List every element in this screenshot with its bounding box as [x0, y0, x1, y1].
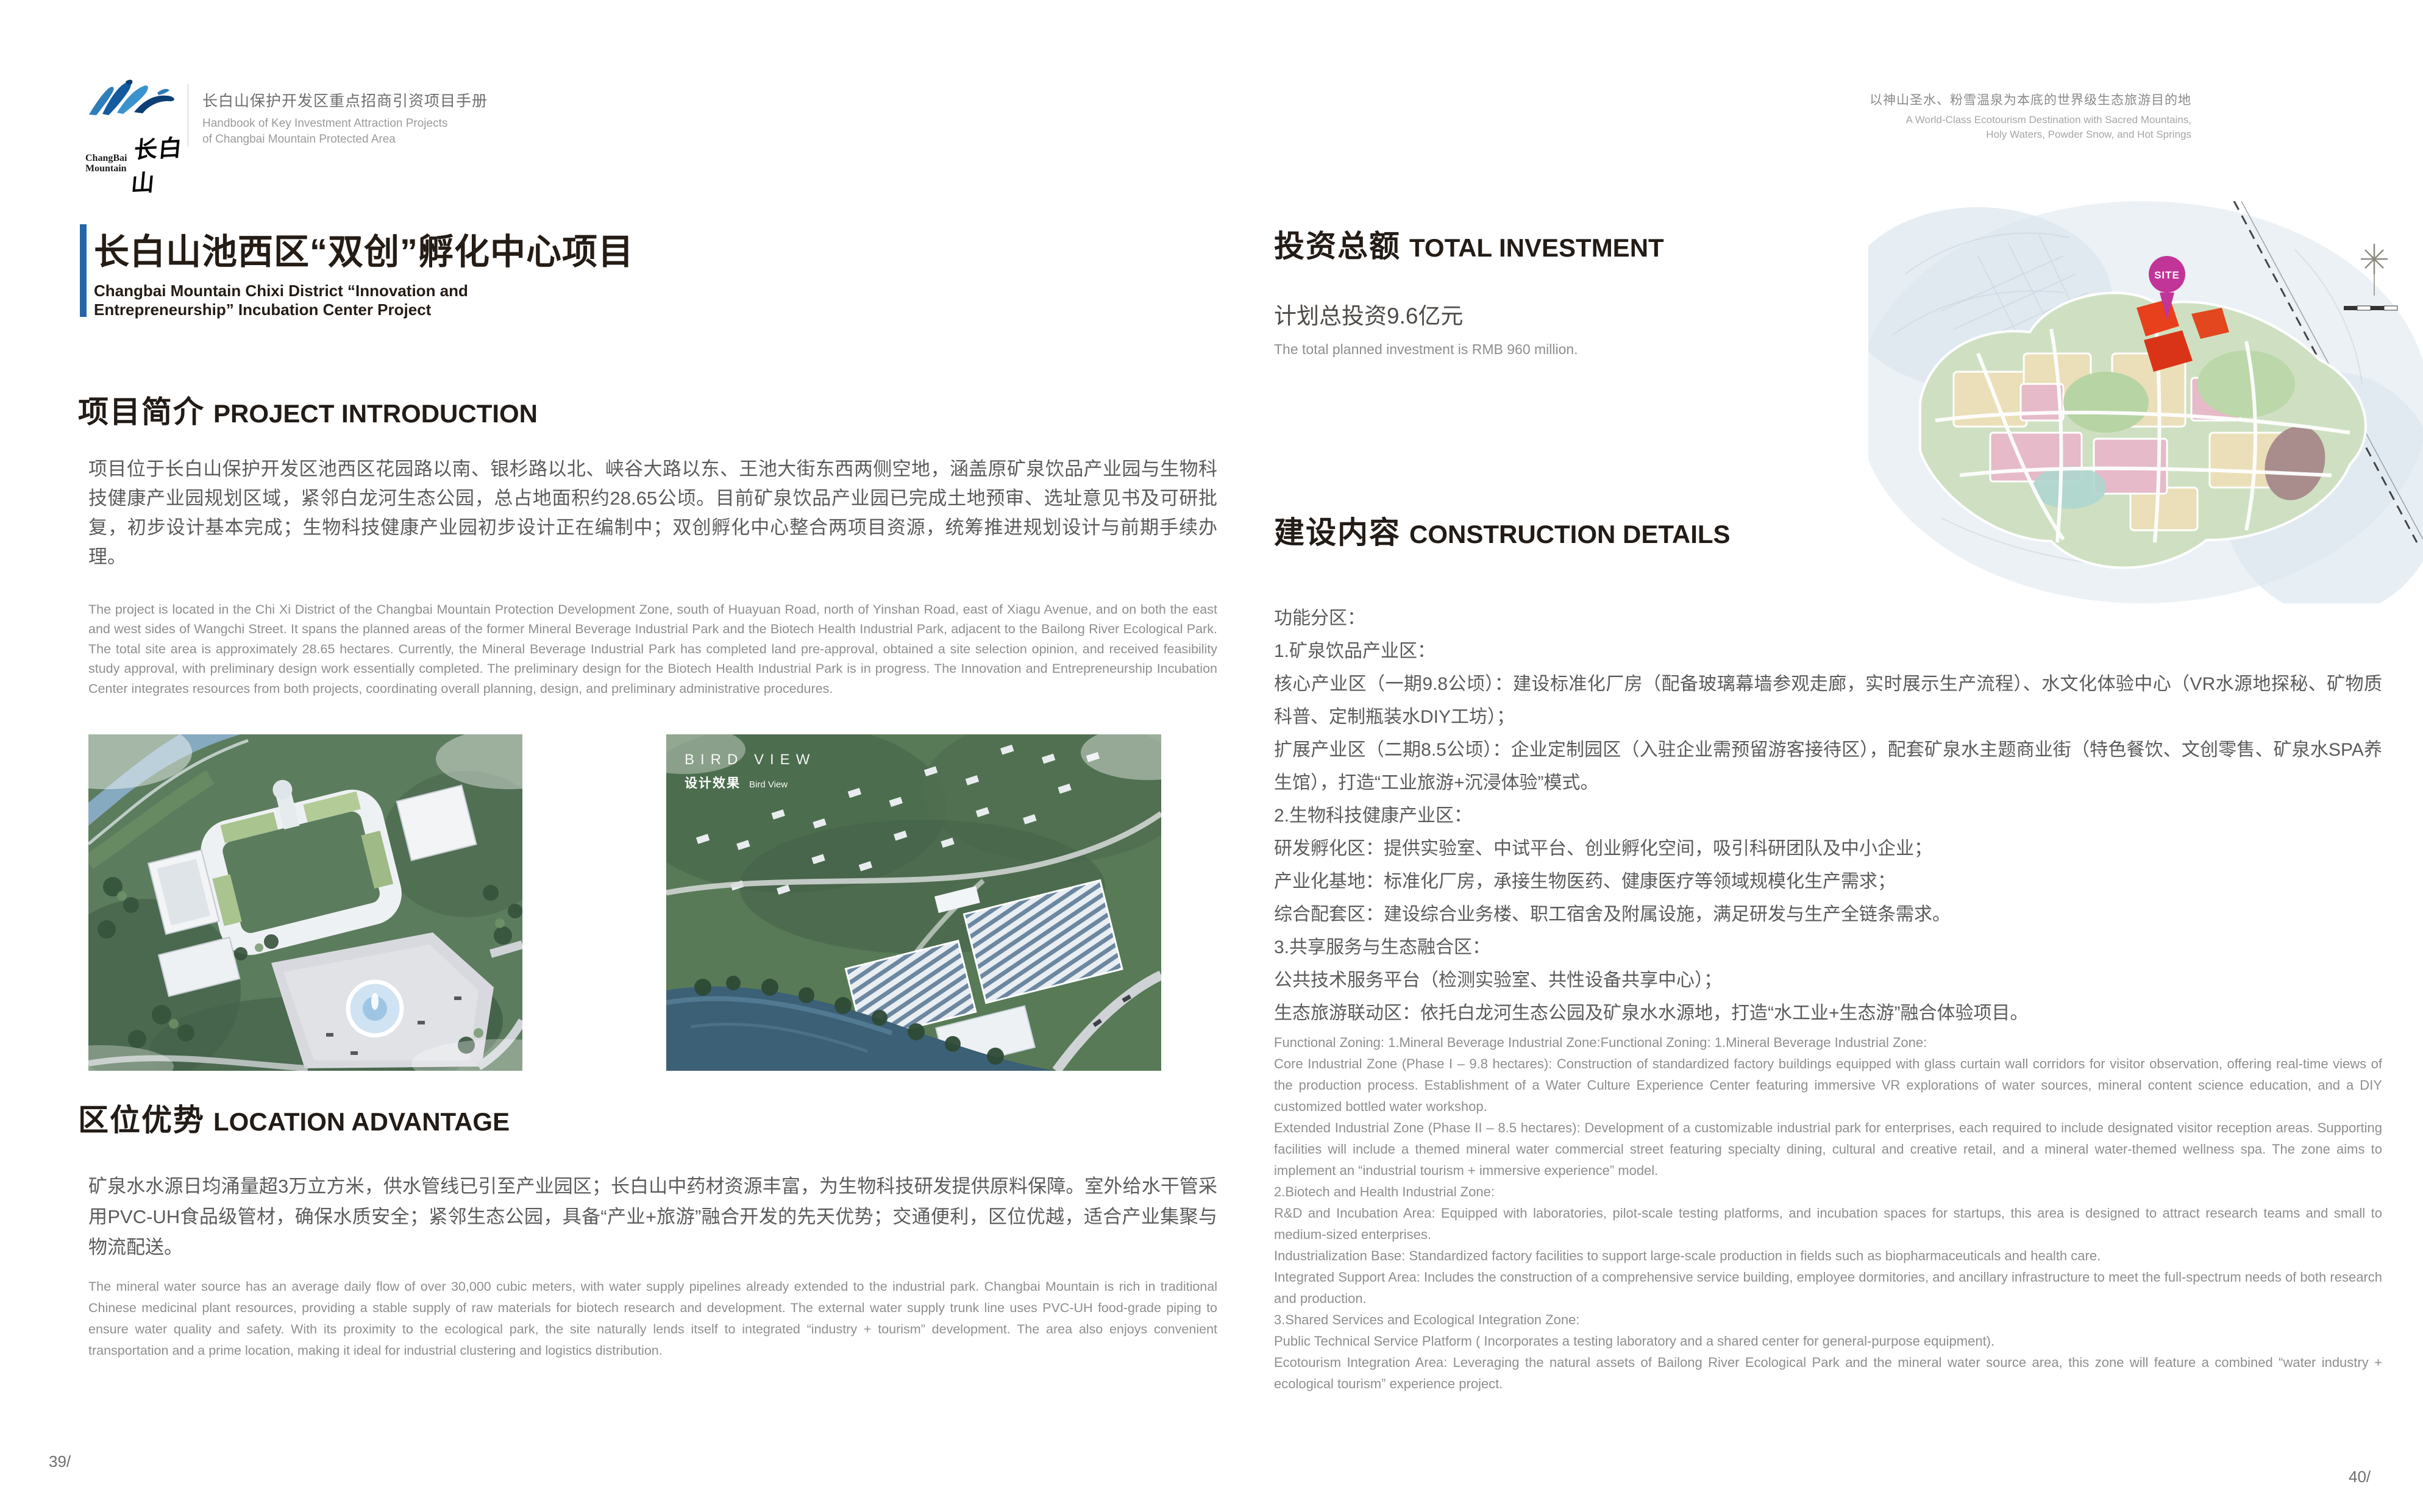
logo-calligraphy: 长白山: [130, 129, 192, 199]
logo-brand-line2: Mountain: [85, 163, 127, 174]
construction-en-line: R&D and Incubation Area: Equipped with l…: [1274, 1202, 2382, 1245]
campus-aerial-render: [88, 734, 522, 1071]
construction-heading: 建设内容CONSTRUCTION DETAILS: [1274, 508, 1731, 552]
intro-body-en: The project is located in the Chi Xi Dis…: [88, 600, 1217, 698]
tagline-en-line1: A World-Class Ecotourism Destination wit…: [1870, 113, 2191, 127]
investment-heading: 投资总额TOTAL INVESTMENT: [1274, 222, 1664, 266]
construction-heading-zh: 建设内容: [1274, 516, 1401, 550]
mountain-brush-logo-icon: [85, 78, 183, 126]
render2-caption-en: Bird View: [749, 779, 788, 790]
header-divider: [188, 84, 188, 146]
construction-zh-line: 2.生物科技健康产业区：: [1274, 800, 2382, 832]
construction-en-line: Industrialization Base: Standardized fac…: [1274, 1245, 2382, 1266]
handbook-title-zh: 长白山保护开发区重点招商引资项目手册: [202, 89, 488, 111]
changbai-logo: ChangBai Mountain 长白山: [85, 78, 189, 197]
intro-heading-zh: 项目简介: [78, 395, 205, 429]
advantage-heading: 区位优势LOCATION ADVANTAGE: [78, 1096, 510, 1140]
project-title-en-line1: Changbai Mountain Chixi District “Innova…: [94, 282, 886, 300]
construction-en-line: Integrated Support Area: Includes the co…: [1274, 1266, 2382, 1309]
construction-zh-line: 扩展产业区（二期8.5公顷）：企业定制园区（入驻企业需预留游客接待区），配套矿泉…: [1274, 734, 2382, 800]
construction-zh-line: 产业化基地：标准化厂房，承接生物医药、健康医疗等领域规模化生产需求；: [1274, 865, 2382, 898]
page-number-left: 39/: [49, 1452, 71, 1471]
intro-heading: 项目简介PROJECT INTRODUCTION: [78, 388, 538, 431]
handbook-title-en-line2: of Changbai Mountain Protected Area: [202, 132, 488, 147]
construction-zh-line: 功能分区：: [1274, 602, 2382, 635]
construction-zh-line: 研发孵化区：提供实验室、中试平台、创业孵化空间，吸引科研团队及中小企业；: [1274, 832, 2382, 865]
advantage-heading-en: LOCATION ADVANTAGE: [213, 1107, 510, 1136]
construction-en-line: 3.Shared Services and Ecological Integra…: [1274, 1309, 2382, 1330]
construction-en-line: Core Industrial Zone (Phase I – 9.8 hect…: [1274, 1053, 2382, 1117]
project-title-en-line2: Entrepreneurship” Incubation Center Proj…: [94, 300, 886, 319]
construction-en-line: Functional Zoning: 1.Mineral Beverage In…: [1274, 1032, 2382, 1053]
title-accent-bar: [80, 224, 87, 317]
construction-zh-line: 1.矿泉饮品产业区：: [1274, 635, 2382, 668]
investment-amount-zh: 计划总投资9.6亿元: [1274, 297, 1463, 330]
intro-heading-en: PROJECT INTRODUCTION: [213, 399, 538, 428]
construction-en-line: Ecotourism Integration Area: Leveraging …: [1274, 1352, 2382, 1394]
tagline-zh: 以神山圣水、粉雪温泉为本底的世界级生态旅游目的地: [1870, 90, 2191, 108]
advantage-body-zh: 矿泉水水源日均涌量超3万立方米，供水管线已引至产业园区；长白山中药材资源丰富，为…: [88, 1171, 1217, 1263]
construction-body-zh: 功能分区： 1.矿泉饮品产业区： 核心产业区（一期9.8公顷）：建设标准化厂房（…: [1274, 602, 2382, 1030]
document-page: ChangBai Mountain 长白山 长白山保护开发区重点招商引资项目手册…: [0, 0, 2423, 1512]
intro-body-zh: 项目位于长白山保护开发区池西区花园路以南、银杉路以北、峡谷大路以东、王池大街东西…: [88, 455, 1217, 572]
render-image-campus: [88, 734, 522, 1071]
render2-caption: BIRD VIEW 设计效果Bird View: [685, 751, 816, 792]
construction-body-en: Functional Zoning: 1.Mineral Beverage In…: [1274, 1032, 2382, 1394]
page-number-right: 40/: [2349, 1468, 2371, 1486]
planning-map: SITE: [1868, 201, 2423, 603]
project-title-en: Changbai Mountain Chixi District “Innova…: [94, 282, 886, 319]
investment-heading-zh: 投资总额: [1274, 229, 1401, 263]
construction-heading-en: CONSTRUCTION DETAILS: [1409, 520, 1731, 548]
construction-zh-line: 核心产业区（一期9.8公顷）：建设标准化厂房（配备玻璃幕墙参观走廊，实时展示生产…: [1274, 668, 2382, 734]
construction-zh-line: 综合配套区：建设综合业务楼、职工宿舍及附属设施，满足研发与生产全链条需求。: [1274, 898, 2382, 931]
project-title: 长白山池西区“双创”孵化中心项目 Changbai Mountain Chixi…: [94, 223, 886, 319]
handbook-title: 长白山保护开发区重点招商引资项目手册 Handbook of Key Inves…: [202, 89, 488, 147]
project-title-zh: 长白山池西区“双创”孵化中心项目: [94, 223, 886, 274]
construction-en-line: Public Technical Service Platform ( Inco…: [1274, 1330, 2382, 1352]
investment-heading-en: TOTAL INVESTMENT: [1409, 233, 1664, 262]
handbook-title-en-line1: Handbook of Key Investment Attraction Pr…: [202, 116, 488, 132]
investment-amount-en: The total planned investment is RMB 960 …: [1274, 341, 1578, 358]
construction-zh-line: 3.共享服务与生态融合区：: [1274, 931, 2382, 964]
scale-bar: [2344, 306, 2397, 310]
logo-brand-line1: ChangBai: [85, 153, 127, 163]
construction-zh-line: 公共技术服务平台（检测实验室、共性设备共享中心）；: [1274, 964, 2382, 997]
construction-zh-line: 生态旅游联动区：依托白龙河生态公园及矿泉水水源地，打造“水工业+生态游”融合体验…: [1274, 997, 2382, 1030]
construction-en-line: Extended Industrial Zone (Phase II – 8.5…: [1274, 1117, 2382, 1181]
tagline: 以神山圣水、粉雪温泉为本底的世界级生态旅游目的地 A World-Class E…: [1870, 90, 2191, 142]
render-image-industrial-park: BIRD VIEW 设计效果Bird View: [666, 734, 1161, 1071]
advantage-heading-zh: 区位优势: [78, 1103, 205, 1137]
site-location-map: SITE: [1868, 201, 2423, 603]
render2-caption-zh: 设计效果: [685, 776, 741, 790]
advantage-body-en: The mineral water source has an average …: [88, 1276, 1217, 1361]
render2-caption-line1: BIRD VIEW: [685, 751, 816, 768]
construction-en-line: 2.Biotech and Health Industrial Zone:: [1274, 1181, 2382, 1202]
tagline-en-line2: Holy Waters, Powder Snow, and Hot Spring…: [1870, 127, 2191, 142]
map-site-label: SITE: [2154, 269, 2180, 281]
